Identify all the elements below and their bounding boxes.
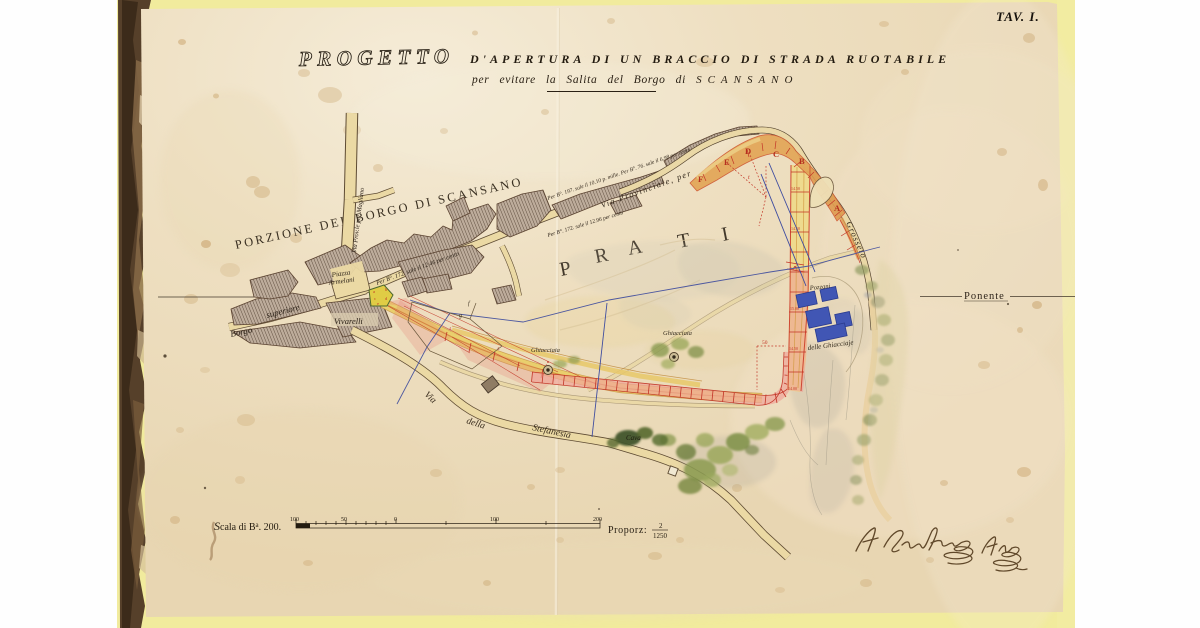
svg-text:Ghiacciaia: Ghiacciaia (531, 347, 560, 354)
svg-text:200: 200 (593, 517, 602, 523)
svg-text:Vivarelli: Vivarelli (334, 316, 363, 326)
svg-text:14.50: 14.50 (789, 346, 798, 351)
svg-text:D'APERTURA DI UN BRACCIO D: D'APERTURA DI UN BRACCIO DI STRADA RUOTA… (469, 52, 950, 66)
svg-text:g: g (459, 313, 462, 319)
svg-text:a: a (373, 289, 375, 294)
svg-text:Cava: Cava (626, 434, 641, 442)
svg-text:PROGETTO: PROGETTO (298, 44, 455, 71)
svg-text:Scala di Ba. 200.: Scala di Ba. 200. (214, 519, 281, 533)
svg-text:50: 50 (762, 340, 768, 346)
svg-text:E: E (724, 157, 730, 167)
svg-text:TAV. I.: TAV. I. (996, 9, 1040, 24)
svg-text:15.00: 15.00 (790, 306, 799, 311)
svg-text:0: 0 (394, 517, 397, 523)
svg-text:100: 100 (490, 517, 499, 523)
svg-text:14.50: 14.50 (791, 186, 800, 191)
svg-text:1250: 1250 (653, 532, 668, 540)
svg-text:C: C (773, 149, 779, 159)
svg-text:D: D (745, 146, 751, 156)
svg-text:Ghiacciaia: Ghiacciaia (663, 330, 692, 337)
svg-text:Ponente: Ponente (964, 291, 1005, 302)
svg-text:c: c (374, 296, 376, 301)
svg-text:4.: 4. (449, 326, 452, 331)
svg-text:A: A (834, 203, 841, 213)
svg-text:F: F (698, 174, 703, 184)
svg-text:Proporz:: Proporz: (608, 525, 647, 536)
svg-text:100: 100 (290, 517, 299, 523)
svg-text:14.00: 14.00 (788, 386, 797, 391)
svg-text:50: 50 (341, 517, 347, 523)
svg-text:2: 2 (659, 522, 663, 530)
svg-text:B: B (799, 156, 805, 166)
svg-text:e: e (377, 301, 379, 306)
svg-text:per evitare la Salita del Borg: per evitare la Salita del Borgo di SCANS… (471, 74, 798, 86)
